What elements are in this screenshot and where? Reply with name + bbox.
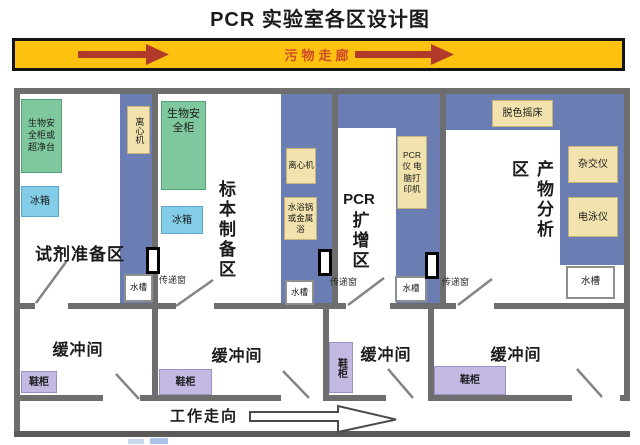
room1-name: 试剂准备区 xyxy=(24,240,136,265)
wall-lab-bottom-seg2 xyxy=(68,303,176,309)
room1-biosafety-cabinet-label: 生物安全柜或超净台 xyxy=(28,118,56,153)
buffer3-name: 缓冲间 xyxy=(348,341,424,365)
wall-divider-buffer1-2 xyxy=(152,303,158,401)
wall-lab-bottom-seg1 xyxy=(14,303,35,309)
room2-fridge: 冰箱 xyxy=(161,206,203,234)
wall-buffer-bottom-seg4 xyxy=(430,395,572,401)
watermark-smudge xyxy=(150,438,168,444)
pass-window-1 xyxy=(146,247,160,274)
work-direction-arrow xyxy=(250,406,396,432)
pass-window-1-label: 传递窗 xyxy=(159,273,186,286)
door-buffer3 xyxy=(388,369,413,398)
pass-window-3 xyxy=(425,252,439,279)
room4-name: 产物分析区 xyxy=(506,160,556,256)
door-buffer4 xyxy=(577,369,602,397)
wall-buffer-bottom-seg3 xyxy=(324,395,386,401)
room4-destain-shaker: 脱色摇床 xyxy=(492,100,553,127)
room3-sink: 水槽 xyxy=(395,276,427,302)
waste-corridor-banner: 污物走廊 xyxy=(12,38,625,71)
buffer4-name: 缓冲间 xyxy=(477,341,555,365)
room1-centrifuge: 离心机 xyxy=(127,106,150,154)
room3-name: PCR 扩增区 xyxy=(338,191,380,271)
wall-top xyxy=(14,88,626,94)
buffer3-shoe-cabinet: 鞋柜 xyxy=(329,342,353,393)
room1-biosafety-cabinet: 生物安全柜或超净台 xyxy=(21,99,62,173)
room1-fridge: 冰箱 xyxy=(21,186,59,217)
room4-sink: 水槽 xyxy=(566,266,615,299)
buffer1-name: 缓冲间 xyxy=(40,336,116,360)
wall-lab-bottom-seg4 xyxy=(390,303,456,309)
waste-corridor-label: 污物走廊 xyxy=(284,45,352,64)
work-corridor-label: 工作走向 xyxy=(170,405,238,426)
room3-pcr-equipment: PCR仪 电脑打印机 xyxy=(397,136,427,209)
buffer2-shoe-cabinet: 鞋柜 xyxy=(159,369,212,395)
room3-name-prefix: PCR xyxy=(343,191,375,208)
room2-name: 标本制备区 xyxy=(213,180,238,295)
wall-left xyxy=(14,88,20,437)
room2-centrifuge: 离心机 xyxy=(286,148,316,184)
room3-pcr-equipment-label: PCR仪 电脑打印机 xyxy=(400,150,424,194)
wall-buffer-bottom-seg1 xyxy=(14,395,103,401)
wall-right xyxy=(624,88,630,400)
room3-name-suffix: 扩增区 xyxy=(347,211,372,271)
room4-electrophoresis: 电泳仪 xyxy=(568,197,618,237)
room2-water-bath-label: 水浴锅或金属浴 xyxy=(287,202,314,235)
wall-lab-bottom-seg5 xyxy=(494,303,630,309)
wall-buffer-bottom-seg5 xyxy=(620,395,630,401)
buffer4-shoe-cabinet: 鞋柜 xyxy=(434,366,506,395)
buffer2-name: 缓冲间 xyxy=(198,342,276,366)
page-title: PCR 实验室各区设计图 xyxy=(0,3,640,32)
wall-buffer-bottom-seg2 xyxy=(140,395,281,401)
pass-window-2-label: 传递窗 xyxy=(330,275,357,288)
door-buffer1 xyxy=(116,374,139,399)
wall-outer-bottom xyxy=(14,431,630,437)
room2-sink: 水槽 xyxy=(285,280,314,305)
room2-water-bath: 水浴锅或金属浴 xyxy=(284,197,317,240)
door-buffer2 xyxy=(283,371,309,398)
room2-biosafety-cabinet-label: 生物安全柜 xyxy=(167,107,201,136)
room1-sink: 水槽 xyxy=(124,274,153,302)
pass-window-3-label: 传递窗 xyxy=(442,275,469,288)
buffer1-shoe-cabinet: 鞋柜 xyxy=(21,371,57,393)
watermark-smudge xyxy=(128,439,144,444)
door-room1 xyxy=(36,262,66,303)
pass-window-2 xyxy=(318,249,332,276)
room2-biosafety-cabinet: 生物安全柜 xyxy=(161,101,206,190)
pcr-lab-floorplan: PCR 实验室各区设计图 污物走廊 生物安全柜或超净台 冰箱 离心机 水槽 试剂… xyxy=(0,0,640,445)
room4-hybridizer: 杂交仪 xyxy=(568,146,618,183)
